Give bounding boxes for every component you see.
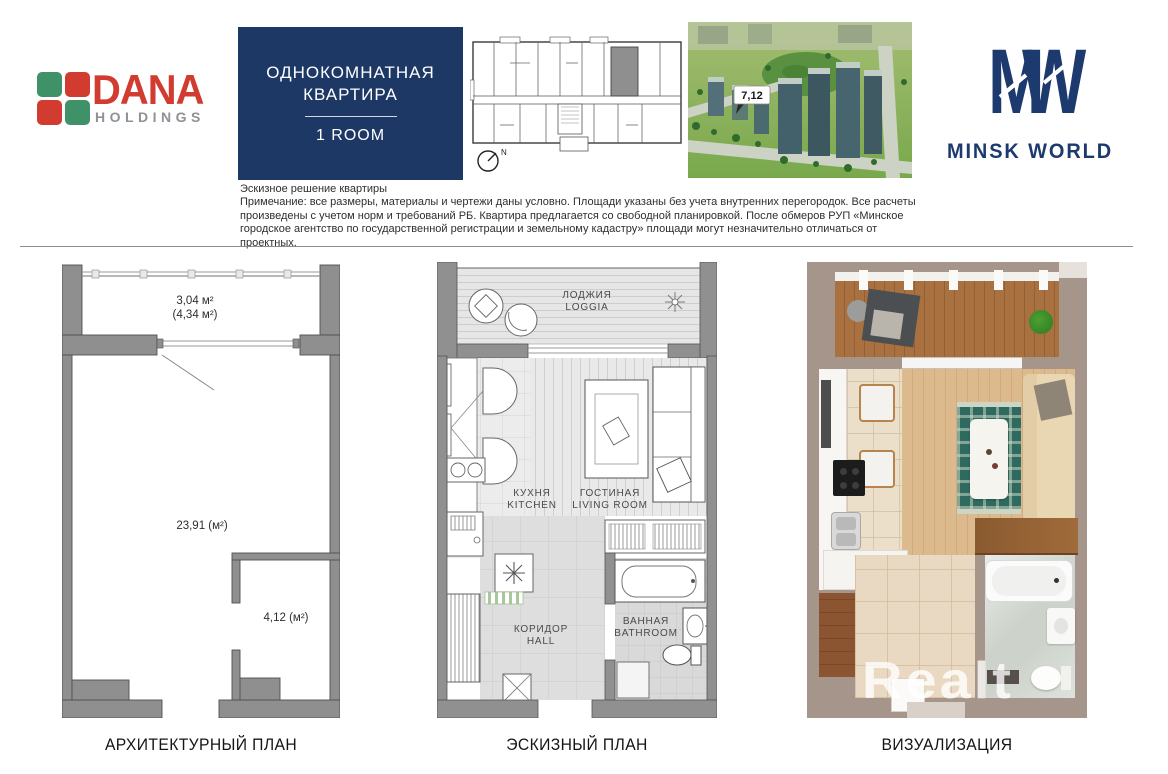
hall-label-en: HALL [527,636,555,647]
disclaimer-block: Эскизное решение квартиры Примечание: вс… [240,183,916,250]
svg-text:7,12: 7,12 [741,90,762,102]
entry-door-box [503,674,531,702]
title-divider [305,116,397,117]
viz-coffee-table [970,419,1008,499]
viz-stool [859,384,895,422]
title-line1: ОДНОКОМНАТНАЯ [266,62,435,84]
sofa [653,367,705,502]
hall-wardrobe [447,594,480,682]
viz-corner-light [1059,262,1087,278]
dana-logo-name: DANA [92,66,203,114]
viz-beam [1039,270,1048,290]
viz-sideboard [975,518,1078,555]
kitchen-counter [447,358,477,518]
dana-square-red-tr [65,72,90,97]
bathtub [615,560,705,602]
north-compass-icon: N [478,148,507,171]
dana-square-red-bl [37,100,62,125]
sketch-plan-caption: ЭСКИЗНЫЙ ПЛАН [444,736,710,755]
disclaimer-title: Эскизное решение квартиры [240,183,916,196]
viz-kitchen-sink [831,512,861,550]
living-wardrobe [605,520,705,553]
living-bed [585,380,648,478]
loggia-label-en: LOGGIA [565,302,608,313]
hall-mat [485,592,523,604]
hall-label-ru: КОРИДОР [514,624,568,635]
viz-toilet-tank [1061,666,1071,690]
architectural-plan: 3,04 м² (4,34 м²) 23,91 (м²) 4,12 (м²) [62,262,340,718]
bath-cabinet [617,662,649,698]
viz-beam [994,270,1003,290]
viz-beam [949,270,958,290]
visualization-caption: ВИЗУАЛИЗАЦИЯ [814,736,1080,755]
building-floor-plan: N [470,33,684,175]
loggia-label-ru: ЛОДЖИЯ [562,290,611,301]
viz-hall-wardrobe [819,593,855,677]
viz-window-sill [902,357,1022,369]
disclaimer-note: Примечание: все размеры, материалы и чер… [240,196,916,250]
viz-bathtub [985,560,1073,602]
dana-logo-icon [37,72,89,124]
header-divider-line [20,246,1133,247]
dana-square-green-tl [37,72,62,97]
kitchen-label-en: KITCHEN [507,500,557,511]
apartment-title-box: ОДНОКОМНАТНАЯ КВАРТИРА 1 ROOM [238,27,463,180]
loggia-area-value: 3,04 м² [176,295,213,307]
highlighted-unit [611,47,638,96]
viz-loggia-glazing [835,272,1059,281]
mw-letter-w: W [1022,36,1086,128]
dana-logo-subtitle: HOLDINGS [95,109,205,125]
loggia-area-alt-value: (4,34 м²) [173,309,218,321]
realt-watermark: Realt [862,650,1014,710]
viz-bath-sink [1047,608,1075,644]
bathroom-label-ru: ВАННАЯ [623,616,669,627]
living-area-value: 23,91 (м²) [176,520,228,532]
viz-toilet [1031,666,1061,690]
title-line2: КВАРТИРА [303,84,398,106]
bathroom-area-value: 4,12 (м²) [264,612,309,624]
room-count-label: 1 ROOM [316,127,385,145]
viz-beam [904,270,913,290]
viz-cooktop [833,460,865,496]
minsk-world-monogram-icon: M W [988,36,1088,132]
stove [447,458,485,482]
loggia-chair [505,304,537,336]
kitchen-label-ru: КУХНЯ [513,488,550,499]
fridge [447,512,483,556]
dana-square-green-br [65,100,90,125]
brochure-page: DANA HOLDINGS ОДНОКОМНАТНАЯ КВАРТИРА 1 R… [0,0,1168,774]
viz-beam [859,270,868,290]
loggia-plant-icon [665,292,685,312]
toilet [663,645,701,665]
sketch-hall-floor [480,516,605,700]
north-label: N [501,148,507,157]
living-label-ru: ГОСТИНАЯ [580,488,640,499]
living-label-en: LIVING ROOM [572,500,647,511]
visualization-render: Realt [807,262,1087,718]
minsk-world-wordmark: MINSK WORLD [940,140,1121,164]
aerial-render: 7,12 [688,22,912,178]
bathroom-label-en: BATHROOM [614,628,677,639]
viz-tv [821,380,831,448]
viz-plant [1029,310,1053,334]
washing-machine [495,554,533,592]
architectural-plan-caption: АРХИТЕКТУРНЫЙ ПЛАН [68,736,334,755]
viz-lounge-chair [862,289,921,348]
sketch-plan: ЛОДЖИЯ LOGGIA [437,262,717,718]
